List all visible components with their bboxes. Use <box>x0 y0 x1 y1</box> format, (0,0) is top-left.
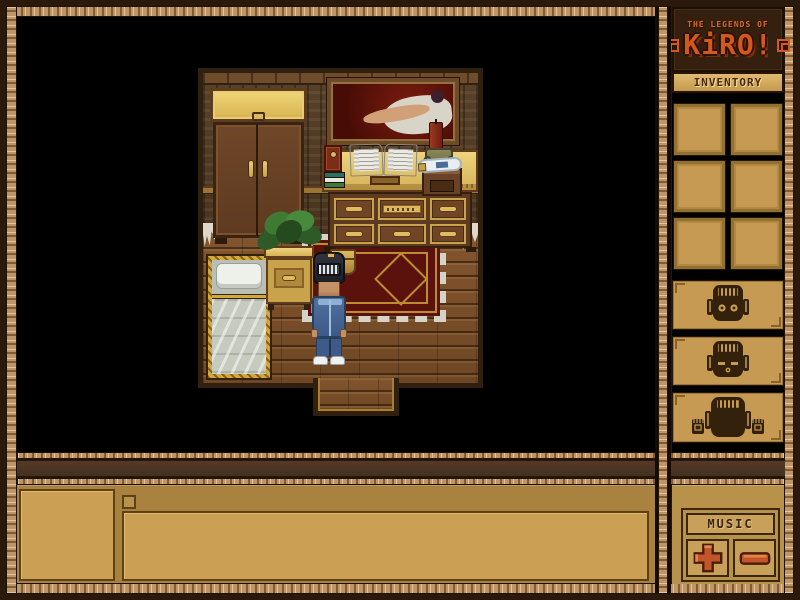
helmet-grill <box>317 263 341 276</box>
wardrobe-handle-right <box>262 160 268 178</box>
panel-divider <box>655 6 671 594</box>
room <box>198 68 483 388</box>
book-stack[interactable] <box>324 182 345 188</box>
nightstand-foot <box>304 304 310 310</box>
rug-medallion <box>374 252 428 306</box>
player-shoe <box>330 356 345 365</box>
logo: THE LEGENDS OF KiRO! <box>672 7 784 72</box>
chat-toggle-button[interactable] <box>122 495 136 509</box>
desk-dresser[interactable] <box>322 150 478 252</box>
frame-border-left <box>6 6 17 594</box>
open-book[interactable] <box>350 144 420 186</box>
drawer[interactable] <box>430 224 466 244</box>
music-label: MUSIC <box>707 517 753 531</box>
book-page-right <box>383 143 417 176</box>
chest-drawer <box>430 180 454 192</box>
frame-border-top <box>6 6 657 17</box>
mask-eyes-open-icon <box>700 283 756 327</box>
frame-border-bottom <box>6 583 794 594</box>
drawer-handle <box>345 206 363 212</box>
drawer-handle <box>393 231 411 237</box>
spiral-icon <box>777 39 790 52</box>
drawer-plate <box>382 204 422 214</box>
mask-button-2[interactable] <box>672 336 784 386</box>
candle[interactable] <box>429 122 443 150</box>
inventory-slot[interactable] <box>674 161 725 212</box>
red-book[interactable] <box>324 145 342 172</box>
drawer[interactable] <box>334 224 374 244</box>
inventory-slot[interactable] <box>731 218 782 269</box>
message-panel <box>17 485 657 583</box>
divider-rope <box>658 6 668 594</box>
desk-leg <box>466 247 476 252</box>
mask-button-1[interactable] <box>672 280 784 330</box>
player-character <box>312 252 346 365</box>
player-hand <box>340 329 347 338</box>
drawer[interactable] <box>334 198 374 220</box>
game-window: THE LEGENDS OF KiRO! INVENTORY <box>0 0 800 600</box>
portrait-box <box>19 489 115 581</box>
book-page-left <box>349 143 383 176</box>
drawer-handle <box>345 231 363 237</box>
nightstand-foot <box>268 304 274 310</box>
plus-icon <box>691 541 725 575</box>
frame-border-right <box>784 6 794 594</box>
inventory-header: INVENTORY <box>672 72 784 93</box>
music-header: MUSIC <box>686 513 775 535</box>
message-box[interactable] <box>122 511 649 581</box>
game-viewport[interactable] <box>17 17 657 452</box>
wardrobe-handle-left <box>248 160 254 178</box>
inventory-slot[interactable] <box>674 104 725 155</box>
inventory-label: INVENTORY <box>694 76 763 89</box>
player-helmet <box>313 252 345 284</box>
drawer-handle <box>439 231 457 237</box>
mask-button-3[interactable] <box>672 392 784 443</box>
inventory-slot[interactable] <box>674 218 725 269</box>
player-pants <box>316 338 342 357</box>
minus-icon <box>738 541 772 575</box>
helmet-gold-chip <box>327 253 335 258</box>
logo-title-row: KiRO! <box>666 31 789 59</box>
doorway[interactable] <box>313 378 399 416</box>
blanket <box>212 299 266 374</box>
volume-up-button[interactable] <box>686 539 729 577</box>
drawer[interactable] <box>430 198 466 220</box>
drawer-center[interactable] <box>378 198 426 220</box>
inventory-slot[interactable] <box>731 104 782 155</box>
player-shoe <box>313 356 328 365</box>
book-stand <box>370 176 400 185</box>
logo-title: KiRO! <box>683 31 772 59</box>
volume-down-button[interactable] <box>733 539 776 577</box>
mask-with-hands-icon <box>692 395 764 441</box>
mask-eyes-closed-icon <box>700 339 756 383</box>
desk-drawers[interactable] <box>328 192 472 248</box>
player-hand <box>311 329 318 338</box>
jacket-zipper <box>329 300 331 336</box>
wardrobe-foot <box>215 238 227 244</box>
inventory-slot[interactable] <box>731 161 782 212</box>
wardrobe-emblem <box>252 112 265 121</box>
drawer-handle <box>439 206 457 212</box>
drawer-center[interactable] <box>378 224 426 244</box>
